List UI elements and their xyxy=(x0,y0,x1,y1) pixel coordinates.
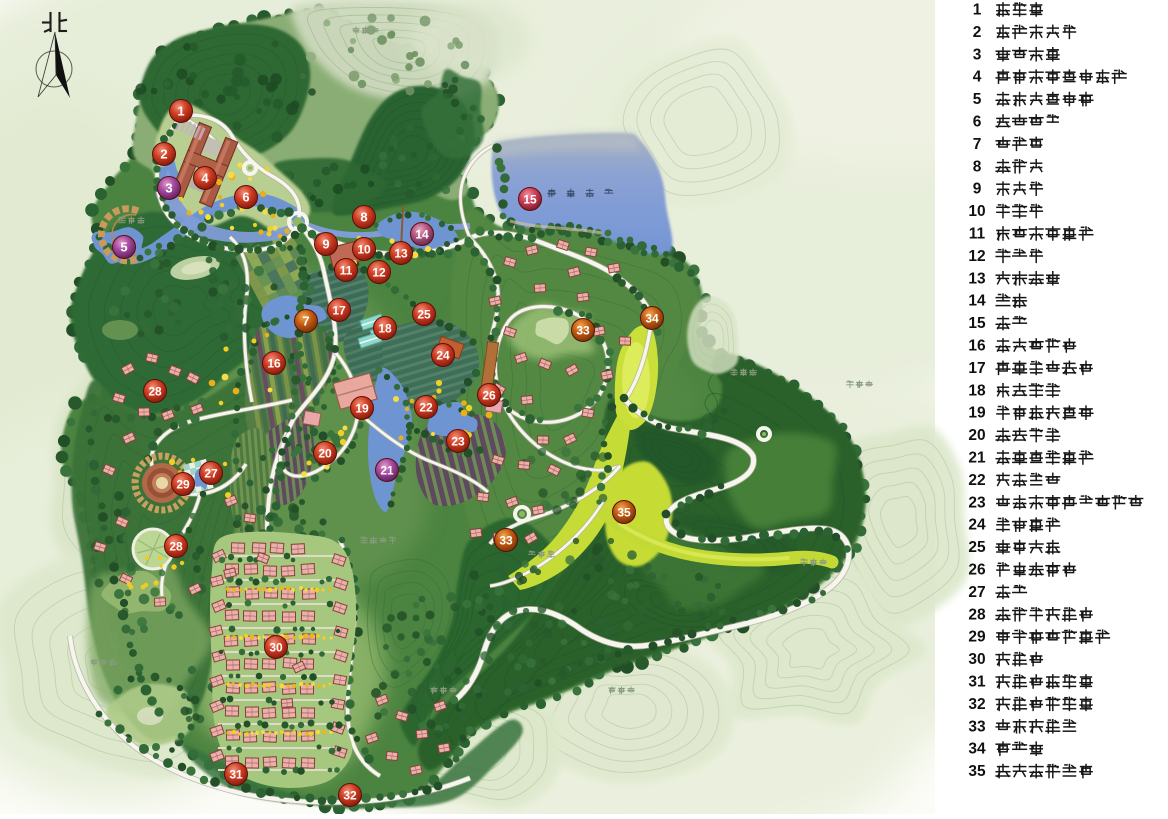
svg-text:20: 20 xyxy=(968,427,985,444)
svg-text:10: 10 xyxy=(968,203,985,220)
svg-text:27: 27 xyxy=(204,466,218,480)
svg-text:24: 24 xyxy=(968,517,986,534)
svg-text:34: 34 xyxy=(645,311,659,325)
svg-text:13: 13 xyxy=(394,246,408,260)
svg-text:16: 16 xyxy=(968,338,986,355)
svg-text:23: 23 xyxy=(451,434,465,448)
svg-text:26: 26 xyxy=(482,388,496,402)
svg-text:15: 15 xyxy=(968,315,986,332)
svg-text:11: 11 xyxy=(340,263,353,277)
svg-text:18: 18 xyxy=(968,382,986,399)
svg-text:17: 17 xyxy=(332,303,346,317)
svg-text:35: 35 xyxy=(617,505,631,519)
svg-text:12: 12 xyxy=(968,248,985,265)
svg-text:32: 32 xyxy=(968,696,985,713)
svg-text:33: 33 xyxy=(499,533,513,547)
svg-text:6: 6 xyxy=(973,114,982,131)
svg-text:32: 32 xyxy=(343,788,357,802)
svg-text:23: 23 xyxy=(968,494,986,511)
svg-text:14: 14 xyxy=(968,293,986,310)
svg-text:7: 7 xyxy=(302,314,309,329)
svg-text:28: 28 xyxy=(148,384,162,398)
svg-text:27: 27 xyxy=(968,584,985,601)
svg-text:5: 5 xyxy=(973,91,982,108)
svg-text:7: 7 xyxy=(973,136,982,153)
svg-text:34: 34 xyxy=(968,741,986,758)
svg-text:25: 25 xyxy=(968,539,986,556)
svg-text:19: 19 xyxy=(355,401,369,415)
svg-text:17: 17 xyxy=(968,360,985,377)
svg-text:1: 1 xyxy=(177,104,184,119)
svg-text:19: 19 xyxy=(968,405,986,422)
svg-text:16: 16 xyxy=(267,356,281,370)
svg-text:30: 30 xyxy=(968,651,985,668)
svg-text:35: 35 xyxy=(968,763,986,780)
svg-text:33: 33 xyxy=(968,718,986,735)
svg-text:24: 24 xyxy=(436,348,450,362)
svg-text:8: 8 xyxy=(360,210,367,225)
svg-text:9: 9 xyxy=(322,237,329,252)
svg-text:8: 8 xyxy=(973,158,982,175)
svg-text:28: 28 xyxy=(968,606,986,623)
svg-text:29: 29 xyxy=(968,629,986,646)
svg-text:12: 12 xyxy=(372,265,386,279)
svg-text:1: 1 xyxy=(973,2,982,19)
svg-text:33: 33 xyxy=(576,323,590,337)
svg-text:20: 20 xyxy=(318,446,332,460)
svg-text:21: 21 xyxy=(968,450,986,467)
svg-text:31: 31 xyxy=(229,767,243,781)
svg-text:5: 5 xyxy=(120,240,127,255)
svg-text:22: 22 xyxy=(419,400,433,414)
svg-text:29: 29 xyxy=(176,477,190,491)
svg-text:31: 31 xyxy=(968,674,986,691)
svg-text:2: 2 xyxy=(160,147,167,162)
svg-text:6: 6 xyxy=(242,190,249,205)
svg-text:28: 28 xyxy=(169,539,183,553)
svg-text:4: 4 xyxy=(973,69,982,86)
svg-text:9: 9 xyxy=(973,181,982,198)
svg-text:15: 15 xyxy=(523,192,537,206)
svg-text:11: 11 xyxy=(969,226,986,243)
svg-text:30: 30 xyxy=(269,640,283,654)
svg-text:14: 14 xyxy=(415,227,429,241)
svg-text:18: 18 xyxy=(378,321,392,335)
svg-text:3: 3 xyxy=(973,46,982,63)
svg-text:13: 13 xyxy=(968,270,986,287)
svg-text:21: 21 xyxy=(380,463,394,477)
svg-text:22: 22 xyxy=(968,472,985,489)
svg-text:4: 4 xyxy=(201,171,209,186)
svg-text:2: 2 xyxy=(973,24,982,41)
svg-text:10: 10 xyxy=(357,242,371,256)
svg-text:3: 3 xyxy=(165,181,172,196)
svg-text:25: 25 xyxy=(417,307,431,321)
svg-text:26: 26 xyxy=(968,562,986,579)
